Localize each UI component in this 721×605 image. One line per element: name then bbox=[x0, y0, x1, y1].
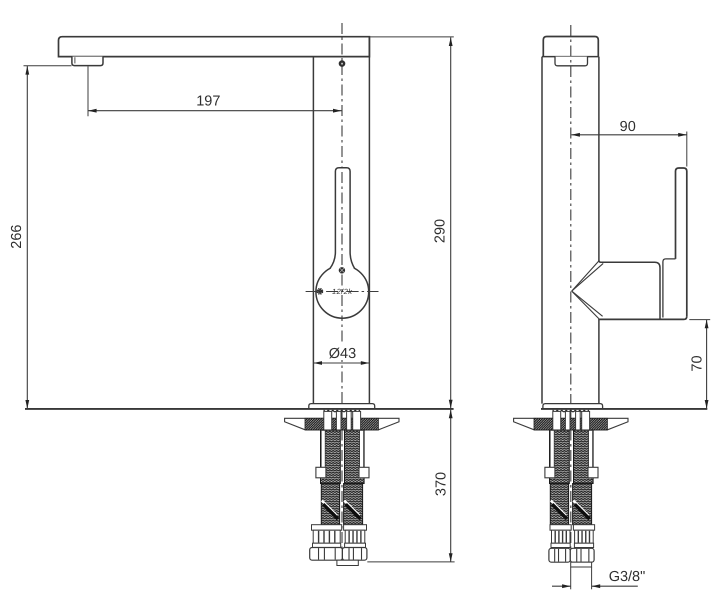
svg-text:Ø43: Ø43 bbox=[329, 346, 356, 362]
svg-text:197: 197 bbox=[196, 94, 220, 110]
svg-text:290: 290 bbox=[433, 219, 449, 243]
svg-text:12/2k: 12/2k bbox=[332, 287, 353, 296]
svg-text:266: 266 bbox=[9, 224, 25, 248]
svg-text:90: 90 bbox=[620, 119, 636, 135]
svg-text:70: 70 bbox=[690, 355, 706, 371]
svg-text:G3/8": G3/8" bbox=[609, 569, 646, 585]
svg-text:370: 370 bbox=[434, 472, 450, 496]
